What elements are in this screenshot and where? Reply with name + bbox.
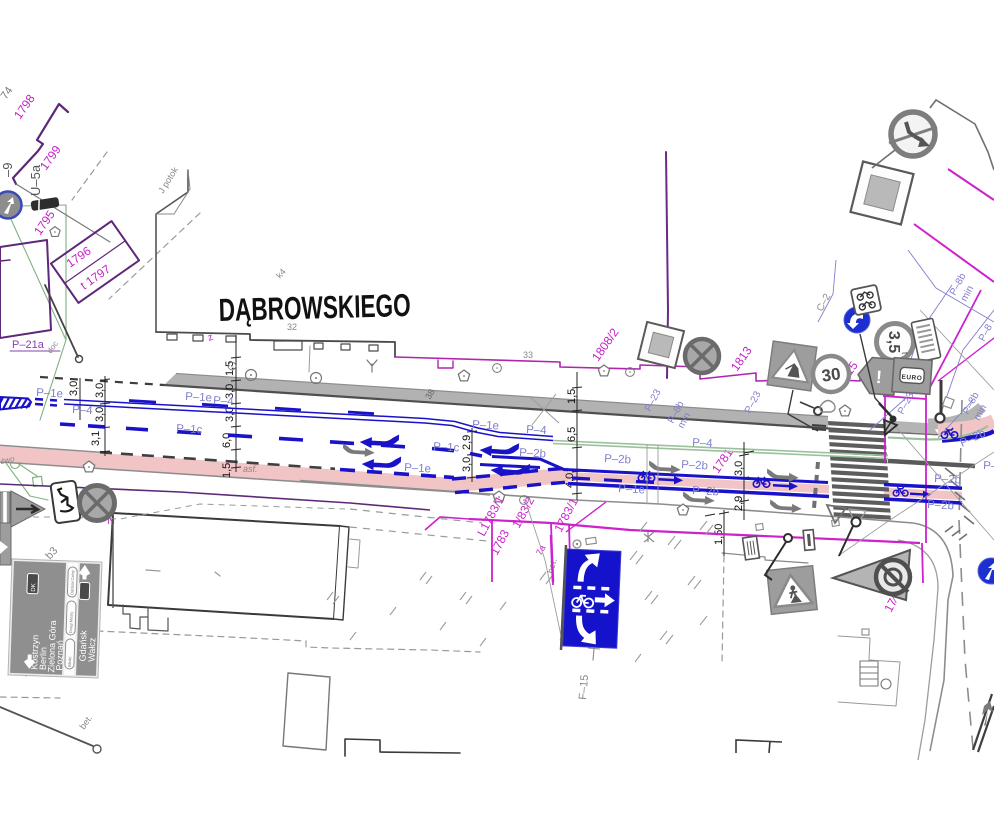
svg-text:P–2b: P–2b xyxy=(519,447,546,460)
svg-text:DK: DK xyxy=(31,583,37,592)
svg-text:Bledz.: Bledz. xyxy=(67,656,72,667)
svg-text:1,5: 1,5 xyxy=(221,463,233,478)
svg-text:Drogi Mosty: Drogi Mosty xyxy=(68,612,74,634)
svg-text:P–2b: P–2b xyxy=(927,499,954,512)
svg-text:P–21a: P–21a xyxy=(12,339,45,351)
svg-text:3,0: 3,0 xyxy=(68,381,80,396)
svg-text:–9: –9 xyxy=(0,163,15,177)
svg-text:2,9: 2,9 xyxy=(733,496,745,511)
svg-text:Wałcz: Wałcz xyxy=(87,637,98,662)
svg-text:3,1: 3,1 xyxy=(90,431,102,446)
svg-text:Oddział Celny: Oddział Celny xyxy=(69,570,75,595)
svg-text:3,0: 3,0 xyxy=(94,407,106,422)
svg-text:P–1e: P–1e xyxy=(36,387,63,400)
svg-text:DĄBROWSKIEGO: DĄBROWSKIEGO xyxy=(218,287,411,328)
svg-text:F–15: F–15 xyxy=(577,674,591,700)
svg-text:3,0: 3,0 xyxy=(461,457,473,472)
svg-text:P–1c: P–1c xyxy=(433,441,460,454)
svg-text:P–4: P–4 xyxy=(692,437,714,450)
svg-text:P–4: P–4 xyxy=(72,404,94,417)
svg-text:P–2b: P–2b xyxy=(604,453,631,466)
svg-text:4,0: 4,0 xyxy=(564,473,576,488)
svg-text:asf.: asf. xyxy=(243,464,258,474)
svg-text:33: 33 xyxy=(523,350,533,360)
svg-text:P–1e: P–1e xyxy=(404,462,431,475)
svg-text:1,5: 1,5 xyxy=(566,389,578,404)
svg-text:P–1c: P–1c xyxy=(176,423,203,436)
svg-text:P–1e: P–1e xyxy=(472,419,499,432)
svg-text:U–5a: U–5a xyxy=(28,164,43,196)
svg-text:P–: P– xyxy=(983,460,994,473)
svg-text:3,5: 3,5 xyxy=(885,331,902,353)
svg-text:P–4: P–4 xyxy=(213,395,235,408)
svg-text:32: 32 xyxy=(287,322,297,332)
svg-text:P–4: P–4 xyxy=(526,424,548,437)
svg-text:P–2b: P–2b xyxy=(681,459,708,472)
svg-text:P–2b: P–2b xyxy=(692,485,719,498)
svg-text:30: 30 xyxy=(820,364,841,385)
svg-text:2,9: 2,9 xyxy=(461,435,473,450)
svg-text:P–1e: P–1e xyxy=(618,483,645,496)
svg-text:P–1e: P–1e xyxy=(185,391,212,404)
svg-text:3,0: 3,0 xyxy=(94,383,106,398)
svg-text:3,0: 3,0 xyxy=(733,461,745,476)
svg-text:Poznań: Poznań xyxy=(54,640,65,671)
svg-text:6,5: 6,5 xyxy=(566,427,578,442)
svg-text:EURO: EURO xyxy=(901,374,922,382)
